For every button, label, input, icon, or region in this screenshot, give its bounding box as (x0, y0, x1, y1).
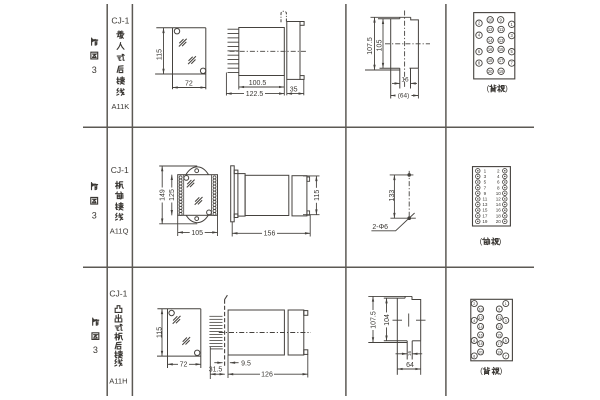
svg-text:11: 11 (499, 27, 504, 32)
svg-text:(64): (64) (398, 93, 410, 100)
svg-text:7: 7 (484, 185, 487, 190)
svg-text:107.5: 107.5 (370, 311, 377, 329)
svg-text:17: 17 (499, 58, 504, 63)
svg-text:2-Φ6: 2-Φ6 (372, 224, 388, 231)
svg-text:20: 20 (479, 350, 483, 354)
svg-text:16: 16 (479, 333, 483, 337)
svg-text:115: 115 (157, 49, 164, 60)
svg-text:2: 2 (497, 168, 500, 173)
svg-text:A11H: A11H (109, 376, 127, 385)
svg-text:20: 20 (488, 69, 493, 74)
svg-text:): ) (500, 367, 503, 376)
svg-text:12: 12 (496, 197, 502, 202)
svg-text:): ) (499, 237, 502, 246)
svg-text:12: 12 (479, 316, 483, 320)
svg-text:15: 15 (497, 333, 501, 337)
svg-text:3: 3 (92, 210, 97, 220)
svg-text:125: 125 (169, 189, 176, 201)
svg-text:3: 3 (484, 174, 487, 179)
svg-text:64: 64 (406, 362, 414, 369)
svg-text:19: 19 (482, 219, 488, 224)
svg-text:107.5: 107.5 (367, 37, 374, 55)
svg-text:100.5: 100.5 (249, 80, 267, 87)
svg-text:14: 14 (488, 38, 493, 43)
svg-text:17: 17 (482, 213, 488, 218)
svg-text:9: 9 (484, 191, 487, 196)
svg-text:3: 3 (505, 319, 507, 323)
svg-text:149: 149 (160, 189, 167, 201)
svg-text:115: 115 (157, 327, 164, 338)
svg-text:3: 3 (93, 345, 98, 355)
svg-text:13: 13 (482, 202, 488, 207)
svg-text:10: 10 (496, 191, 502, 196)
svg-text:18: 18 (496, 213, 502, 218)
svg-text:3: 3 (92, 65, 97, 75)
svg-text:8: 8 (497, 185, 500, 190)
svg-text:126: 126 (261, 372, 273, 379)
svg-text:4: 4 (497, 174, 500, 179)
svg-text:16: 16 (407, 351, 412, 357)
svg-text:CJ-1: CJ-1 (111, 165, 129, 175)
svg-text:17: 17 (497, 342, 501, 346)
svg-text:115: 115 (314, 190, 321, 201)
svg-text:1: 1 (505, 302, 507, 306)
svg-text:CJ-1: CJ-1 (109, 289, 127, 299)
svg-text:15: 15 (482, 208, 488, 213)
svg-text:11: 11 (497, 316, 501, 320)
svg-text:35: 35 (290, 87, 298, 94)
svg-text:72: 72 (180, 362, 188, 369)
svg-text:19: 19 (497, 350, 501, 354)
svg-text:5: 5 (484, 180, 487, 185)
svg-text:8: 8 (473, 354, 475, 358)
svg-text:9.5: 9.5 (241, 360, 251, 367)
svg-text:18: 18 (488, 58, 493, 63)
svg-text:6: 6 (497, 180, 500, 185)
svg-text:16: 16 (496, 208, 502, 213)
svg-text:133: 133 (389, 190, 396, 202)
svg-text:14: 14 (479, 325, 483, 329)
svg-text:CJ-1: CJ-1 (111, 15, 129, 25)
svg-text:72: 72 (185, 81, 193, 88)
svg-text:A11K: A11K (112, 102, 130, 111)
svg-text:1: 1 (484, 168, 487, 173)
svg-text:14: 14 (496, 202, 502, 207)
svg-text:104: 104 (384, 314, 391, 326)
svg-text:13: 13 (497, 325, 501, 329)
svg-text:4: 4 (473, 319, 475, 323)
svg-text:2: 2 (473, 302, 475, 306)
svg-text:A11Q: A11Q (110, 226, 129, 235)
svg-text:5: 5 (505, 339, 507, 343)
svg-text:(: ( (480, 237, 483, 246)
svg-text:31.5: 31.5 (209, 367, 223, 374)
svg-text:6: 6 (473, 339, 475, 343)
svg-text:105: 105 (191, 230, 203, 237)
svg-text:): ) (505, 84, 508, 93)
svg-text:9: 9 (498, 307, 500, 311)
svg-text:(: ( (480, 367, 483, 376)
svg-text:11: 11 (483, 197, 488, 202)
svg-text:10: 10 (488, 17, 493, 22)
svg-text:156: 156 (264, 231, 276, 238)
svg-text:122.5: 122.5 (246, 91, 264, 98)
svg-text:105: 105 (376, 40, 383, 52)
svg-text:12: 12 (488, 27, 493, 32)
svg-text:20: 20 (496, 219, 502, 224)
svg-text:19: 19 (499, 69, 504, 74)
svg-text:15: 15 (499, 47, 504, 52)
svg-text:7: 7 (505, 354, 507, 358)
svg-text:13: 13 (499, 38, 504, 43)
svg-text:10: 10 (479, 307, 483, 311)
svg-text:(: ( (487, 84, 490, 93)
svg-text:18: 18 (479, 342, 483, 346)
svg-text:16: 16 (401, 77, 409, 84)
svg-text:16: 16 (488, 47, 493, 52)
